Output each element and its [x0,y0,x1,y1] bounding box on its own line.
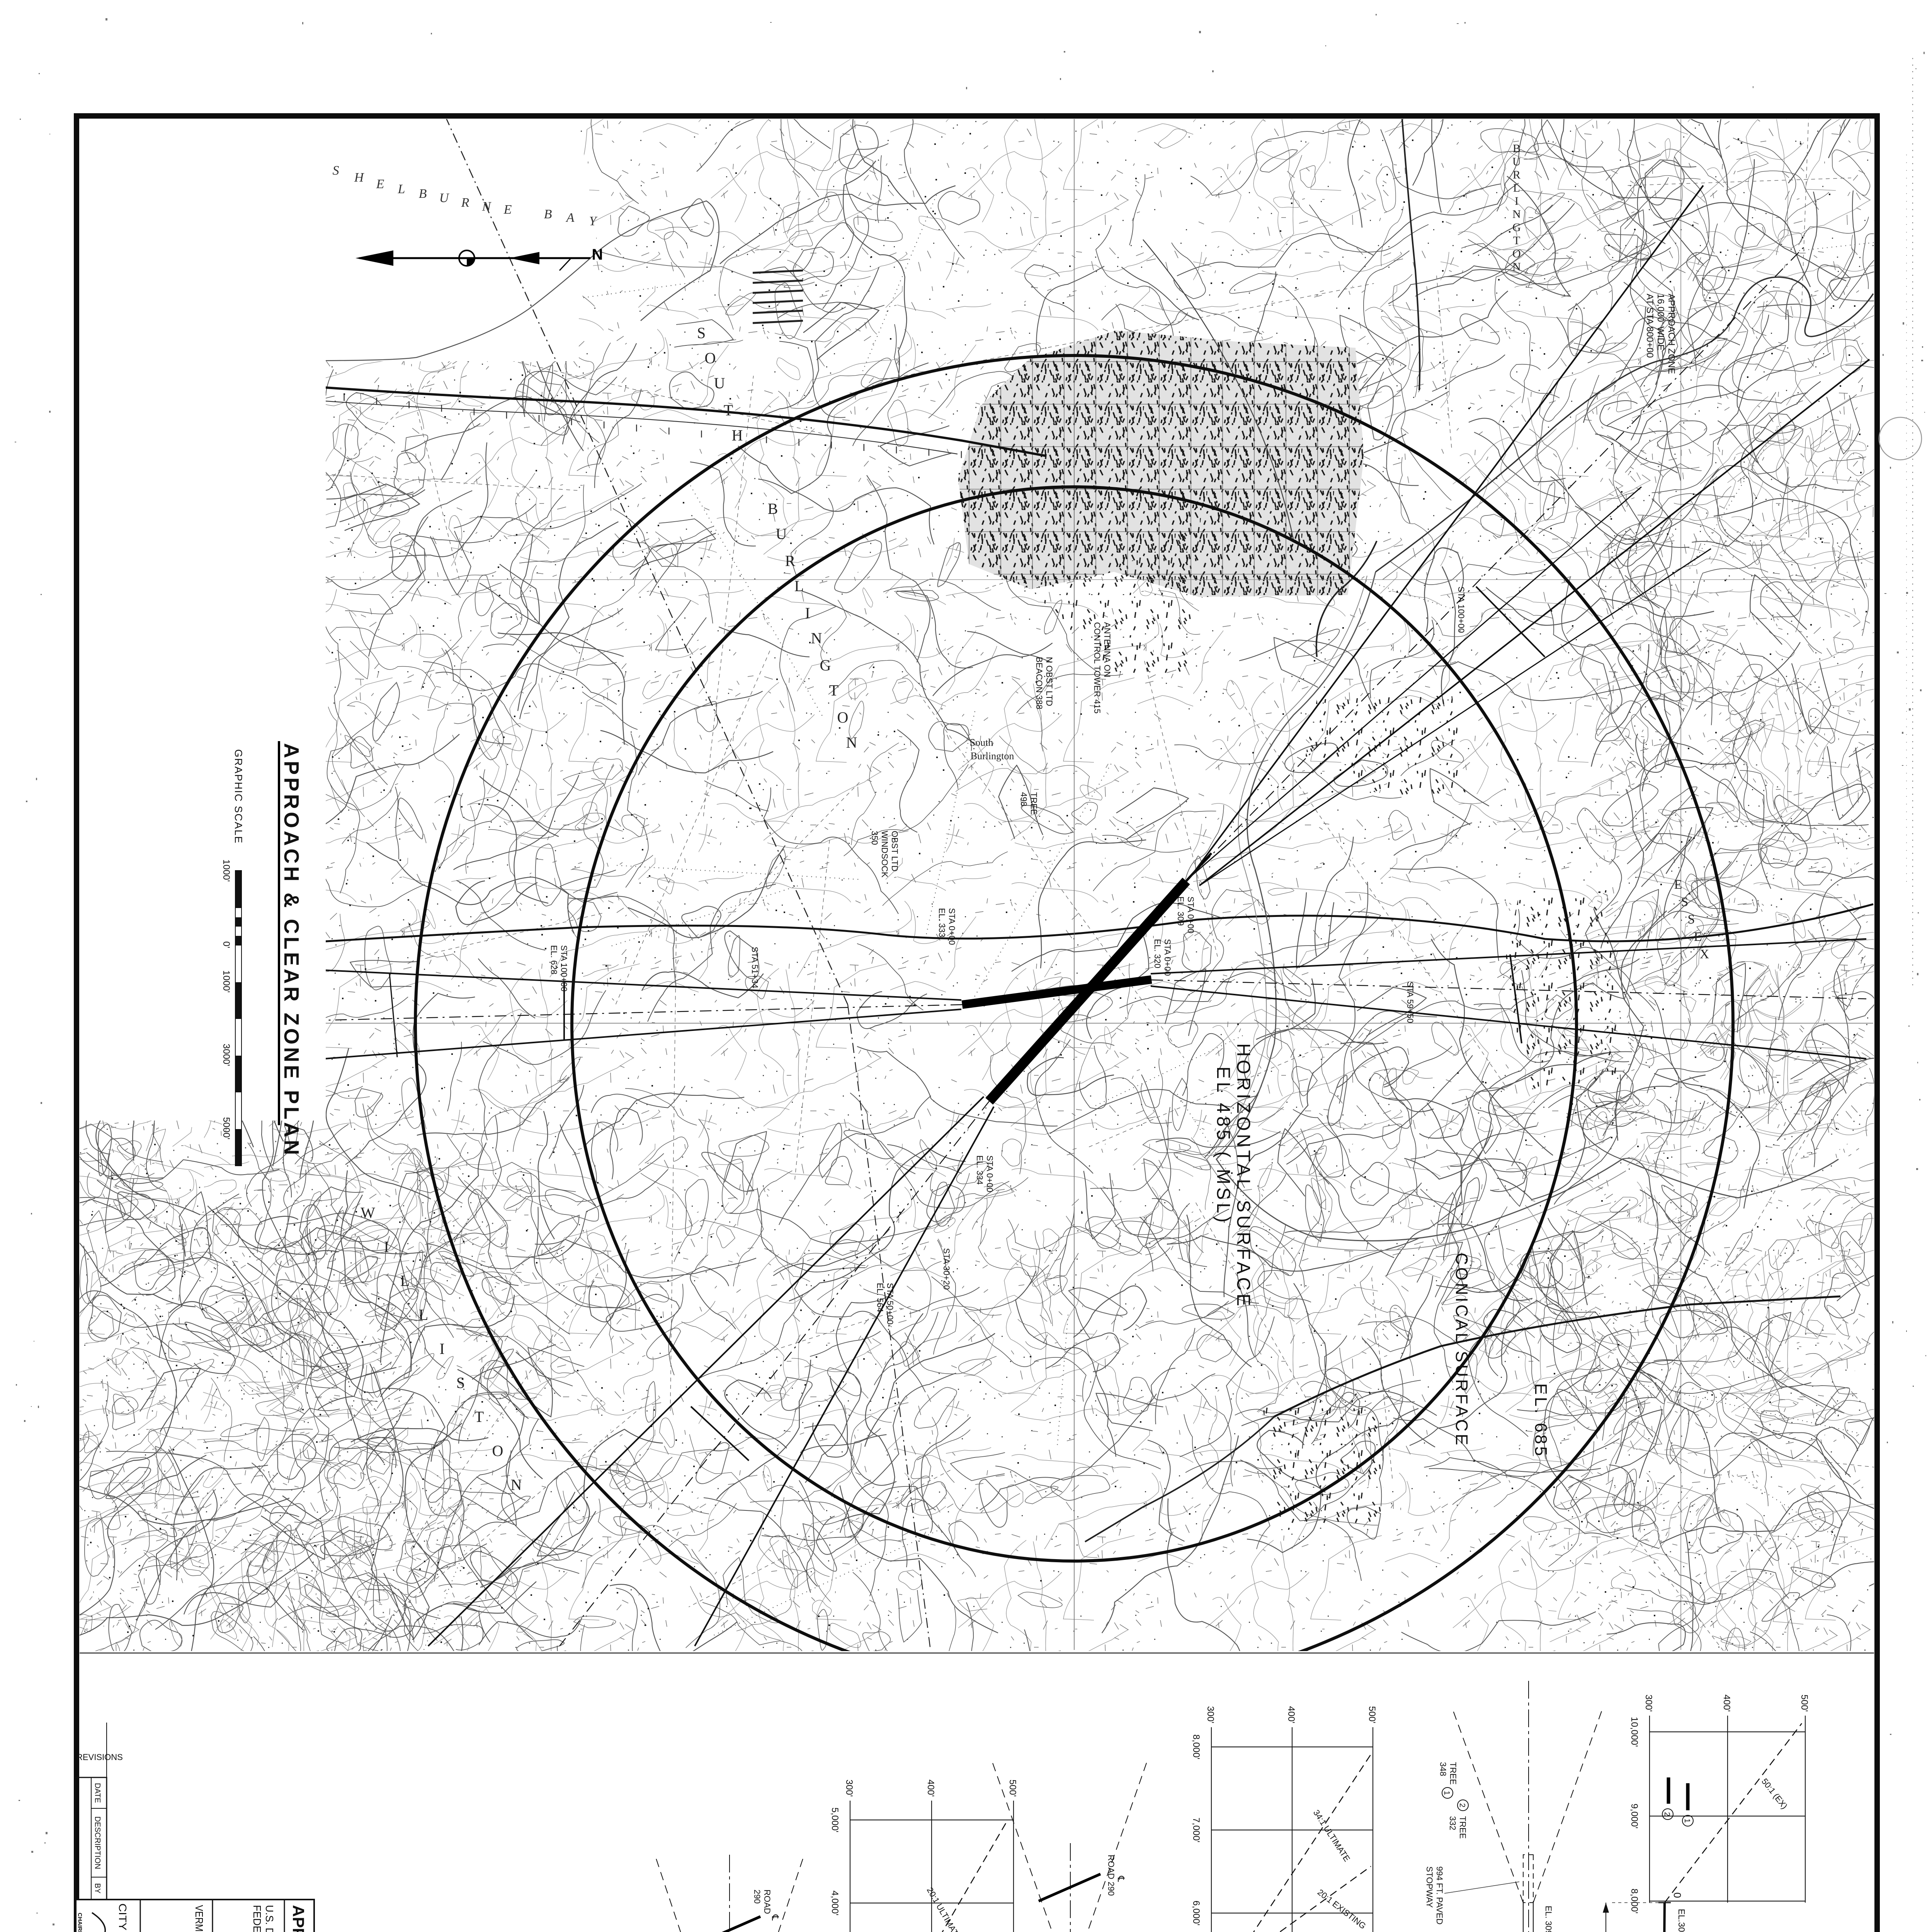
svg-text:300': 300' [1205,1706,1216,1723]
svg-text:STA 51+34: STA 51+34 [750,947,760,988]
svg-text:DESCRIPTION: DESCRIPTION [93,1816,102,1869]
svg-text:EL. 334: EL. 334 [975,1155,985,1185]
svg-text:1000': 1000' [221,859,231,882]
svg-text:℄: ℄ [770,1914,780,1921]
svg-text:400': 400' [925,1779,936,1797]
svg-text:T: T [829,682,838,699]
svg-text:O: O [1512,247,1521,260]
svg-text:T: T [474,1408,484,1425]
svg-text:6,000': 6,000' [1191,1901,1201,1926]
svg-text:℄: ℄ [1116,1876,1126,1882]
svg-text:CHAIRMAN AIRPORT COMMISSION: CHAIRMAN AIRPORT COMMISSION [77,1913,83,1932]
svg-text:10,000': 10,000' [1629,1717,1639,1747]
svg-text:400': 400' [1286,1706,1296,1723]
svg-text:L: L [419,1306,428,1323]
svg-text:EL. 628: EL. 628 [549,945,559,975]
svg-text:0': 0' [221,941,231,948]
svg-text:I: I [805,604,810,622]
svg-text:U.S. DEPT. OF TRANSPORTATION: U.S. DEPT. OF TRANSPORTATION [264,1905,276,1932]
svg-text:1000': 1000' [221,970,231,993]
svg-text:REVISIONS: REVISIONS [77,1752,123,1762]
svg-text:ROAD 290: ROAD 290 [1106,1855,1116,1896]
svg-text:R: R [785,552,796,570]
svg-text:STA 30+20: STA 30+20 [942,1248,951,1290]
svg-text:CITY OF BURLINGTON: CITY OF BURLINGTON [117,1903,129,1932]
svg-text:STA 59+50: STA 59+50 [1405,981,1415,1023]
svg-text:I: I [384,1238,389,1255]
svg-text:N: N [1512,260,1521,273]
svg-text:B: B [768,500,778,517]
svg-text:ROAD: ROAD [762,1889,772,1914]
svg-text:S: S [697,324,706,342]
svg-text:994 FT. PAVED: 994 FT. PAVED [1435,1866,1444,1925]
svg-text:I: I [1515,195,1519,207]
svg-text:TREE: TREE [1029,792,1039,815]
svg-text:N: N [846,734,857,751]
svg-text:S: S [1681,895,1689,909]
svg-text:O: O [837,709,849,726]
svg-text:1: 1 [1442,1791,1451,1795]
svg-text:S: S [1688,912,1695,927]
svg-text:E: E [503,202,512,217]
svg-text:G: G [820,656,831,674]
svg-text:N: N [511,1476,522,1493]
svg-text:E: E [1674,878,1682,892]
svg-text:5000': 5000' [221,1117,231,1139]
svg-text:H: H [732,427,743,444]
svg-text:1: 1 [1683,1818,1691,1823]
svg-text:STA 100+00: STA 100+00 [559,945,569,992]
svg-text:GRAPHIC SCALE: GRAPHIC SCALE [233,749,244,844]
svg-text:BEACON 388: BEACON 388 [1034,657,1044,709]
svg-text:0: 0 [1672,1893,1683,1898]
svg-text:350: 350 [870,831,879,845]
svg-text:U: U [1512,155,1521,168]
svg-text:L: L [400,1272,410,1289]
svg-text:EL. 320: EL. 320 [1153,939,1162,968]
svg-text:H: H [354,170,365,185]
svg-text:34:1 ULTIMATE: 34:1 ULTIMATE [1311,1808,1352,1863]
svg-text:EL. 309: EL. 309 [1176,896,1185,926]
svg-text:400': 400' [1721,1694,1732,1712]
svg-text:N: N [1512,208,1521,221]
svg-text:TREE: TREE [1458,1816,1468,1839]
svg-text:O: O [705,349,716,367]
svg-text:B: B [544,207,552,221]
svg-text:U: U [439,191,450,205]
svg-text:8,000': 8,000' [1629,1889,1639,1914]
svg-text:STA 0+00: STA 0+00 [1186,896,1196,934]
svg-text:WINDSOCK: WINDSOCK [880,831,889,878]
svg-text:2: 2 [1663,1812,1671,1816]
svg-text:E: E [1694,930,1702,944]
svg-text:EL. 333: EL. 333 [937,908,947,937]
svg-text:3000': 3000' [221,1044,231,1066]
svg-text:N: N [811,629,822,647]
svg-text:STA 0+00: STA 0+00 [985,1155,995,1192]
svg-text:EL. 309: EL. 309 [1544,1906,1553,1932]
svg-text:DATE: DATE [93,1783,102,1803]
svg-text:CONTROL TOWER 415: CONTROL TOWER 415 [1092,622,1102,714]
svg-text:APPROACH ZONE: APPROACH ZONE [1666,294,1677,374]
svg-text:FEDERAL AVIATION ADMIN.: FEDERAL AVIATION ADMIN. [251,1905,263,1932]
svg-text:Y: Y [589,214,598,228]
svg-text:N: N [592,246,603,263]
svg-text:290: 290 [752,1889,762,1904]
svg-text:VERMONT AERONAUTICS BOARD: VERMONT AERONAUTICS BOARD [193,1905,205,1932]
svg-text:I: I [439,1340,444,1357]
svg-text:N: N [482,199,492,214]
svg-text:U: U [776,525,787,543]
svg-text:S: S [333,163,339,178]
svg-text:TREE: TREE [1448,1762,1458,1785]
svg-text:APPROACH & CLEAR ZONE PLAN: APPROACH & CLEAR ZONE PLAN [280,743,303,1158]
svg-text:HORIZONTAL SURFACE: HORIZONTAL SURFACE [1233,1043,1253,1309]
svg-text:50:1 (EX): 50:1 (EX) [1760,1777,1789,1811]
svg-text:5,000': 5,000' [830,1808,840,1833]
svg-text:500': 500' [1367,1706,1377,1723]
svg-text:ANTENNA ON: ANTENNA ON [1102,622,1112,677]
svg-text:T: T [1513,234,1520,247]
svg-text:498: 498 [1019,792,1029,806]
svg-text:Burlington: Burlington [971,750,1014,762]
svg-text:348: 348 [1438,1762,1448,1776]
svg-text:T: T [724,401,733,419]
svg-text:B: B [1513,142,1520,155]
svg-text:South: South [970,737,993,748]
svg-text:APPROVED BY:: APPROVED BY: [289,1905,308,1932]
svg-text:300': 300' [844,1779,854,1797]
svg-text:20:1 EXISTING: 20:1 EXISTING [1316,1887,1368,1931]
svg-text:L: L [794,577,804,595]
svg-text:332: 332 [1448,1816,1458,1830]
svg-text:20:1 ULTIMATE: 20:1 ULTIMATE [925,1886,963,1932]
svg-text:L: L [1513,182,1520,194]
svg-text:STA 50+00: STA 50+00 [885,1283,895,1325]
svg-text:EL. 685: EL. 685 [1531,1383,1550,1458]
svg-text:L: L [398,182,405,196]
svg-text:EL. 564: EL. 564 [875,1283,885,1312]
svg-text:500': 500' [1799,1694,1810,1712]
svg-text:300': 300' [1643,1694,1654,1712]
svg-text:500': 500' [1007,1779,1018,1797]
svg-text:R: R [1513,168,1520,181]
svg-text:A: A [566,211,575,225]
svg-text:STOPWAY: STOPWAY [1425,1866,1434,1908]
svg-text:B: B [419,187,427,201]
svg-text:U: U [714,374,725,392]
svg-text:4,000': 4,000' [830,1891,840,1916]
svg-text:7,000': 7,000' [1191,1818,1201,1843]
svg-text:W: W [361,1204,375,1221]
svg-text:STA 0+00: STA 0+00 [1163,939,1172,976]
svg-text:8,000': 8,000' [1191,1735,1201,1760]
svg-text:2: 2 [1458,1803,1466,1807]
svg-text:STA 100+00: STA 100+00 [1456,587,1466,633]
svg-text:X: X [1700,947,1709,961]
svg-text:EL 485 ( MSL): EL 485 ( MSL) [1213,1066,1233,1226]
svg-text:BY: BY [93,1883,102,1894]
svg-text:EL.309: EL.309 [1677,1909,1687,1932]
svg-text:STA 0+00: STA 0+00 [947,908,957,945]
svg-text:E: E [376,177,384,191]
svg-text:S: S [456,1374,465,1391]
svg-text:G: G [1512,221,1521,234]
svg-text:R: R [461,196,469,210]
svg-text:OBST LTD: OBST LTD [890,831,900,872]
svg-text:N OBST LTD: N OBST LTD [1044,657,1054,706]
svg-text:AT STA 800+00: AT STA 800+00 [1645,294,1655,358]
svg-text:9,000': 9,000' [1629,1804,1639,1829]
svg-text:CONICAL SURFACE: CONICAL SURFACE [1452,1253,1471,1447]
svg-text:16,000' WIDE: 16,000' WIDE [1655,294,1666,350]
svg-text:O: O [492,1442,503,1459]
